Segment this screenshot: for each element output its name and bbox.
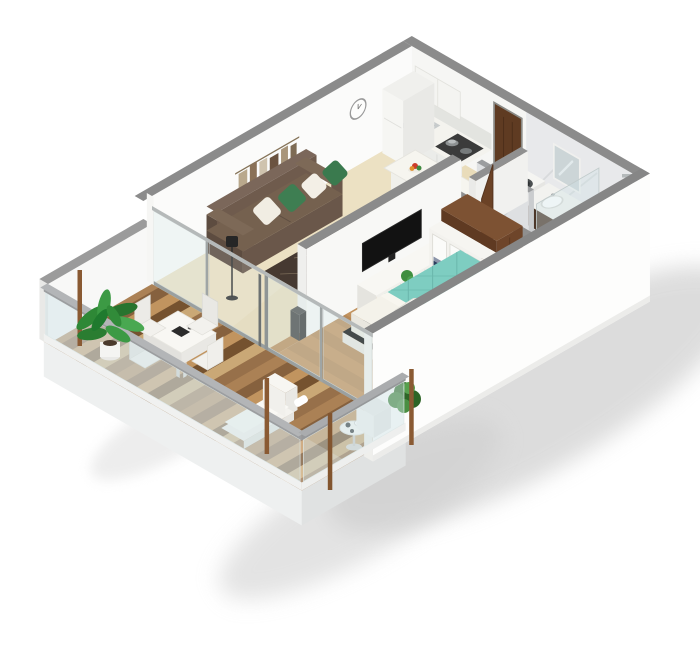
fridge [382, 71, 434, 165]
floor-plan-render [0, 0, 700, 650]
isometric-scene [0, 0, 700, 650]
